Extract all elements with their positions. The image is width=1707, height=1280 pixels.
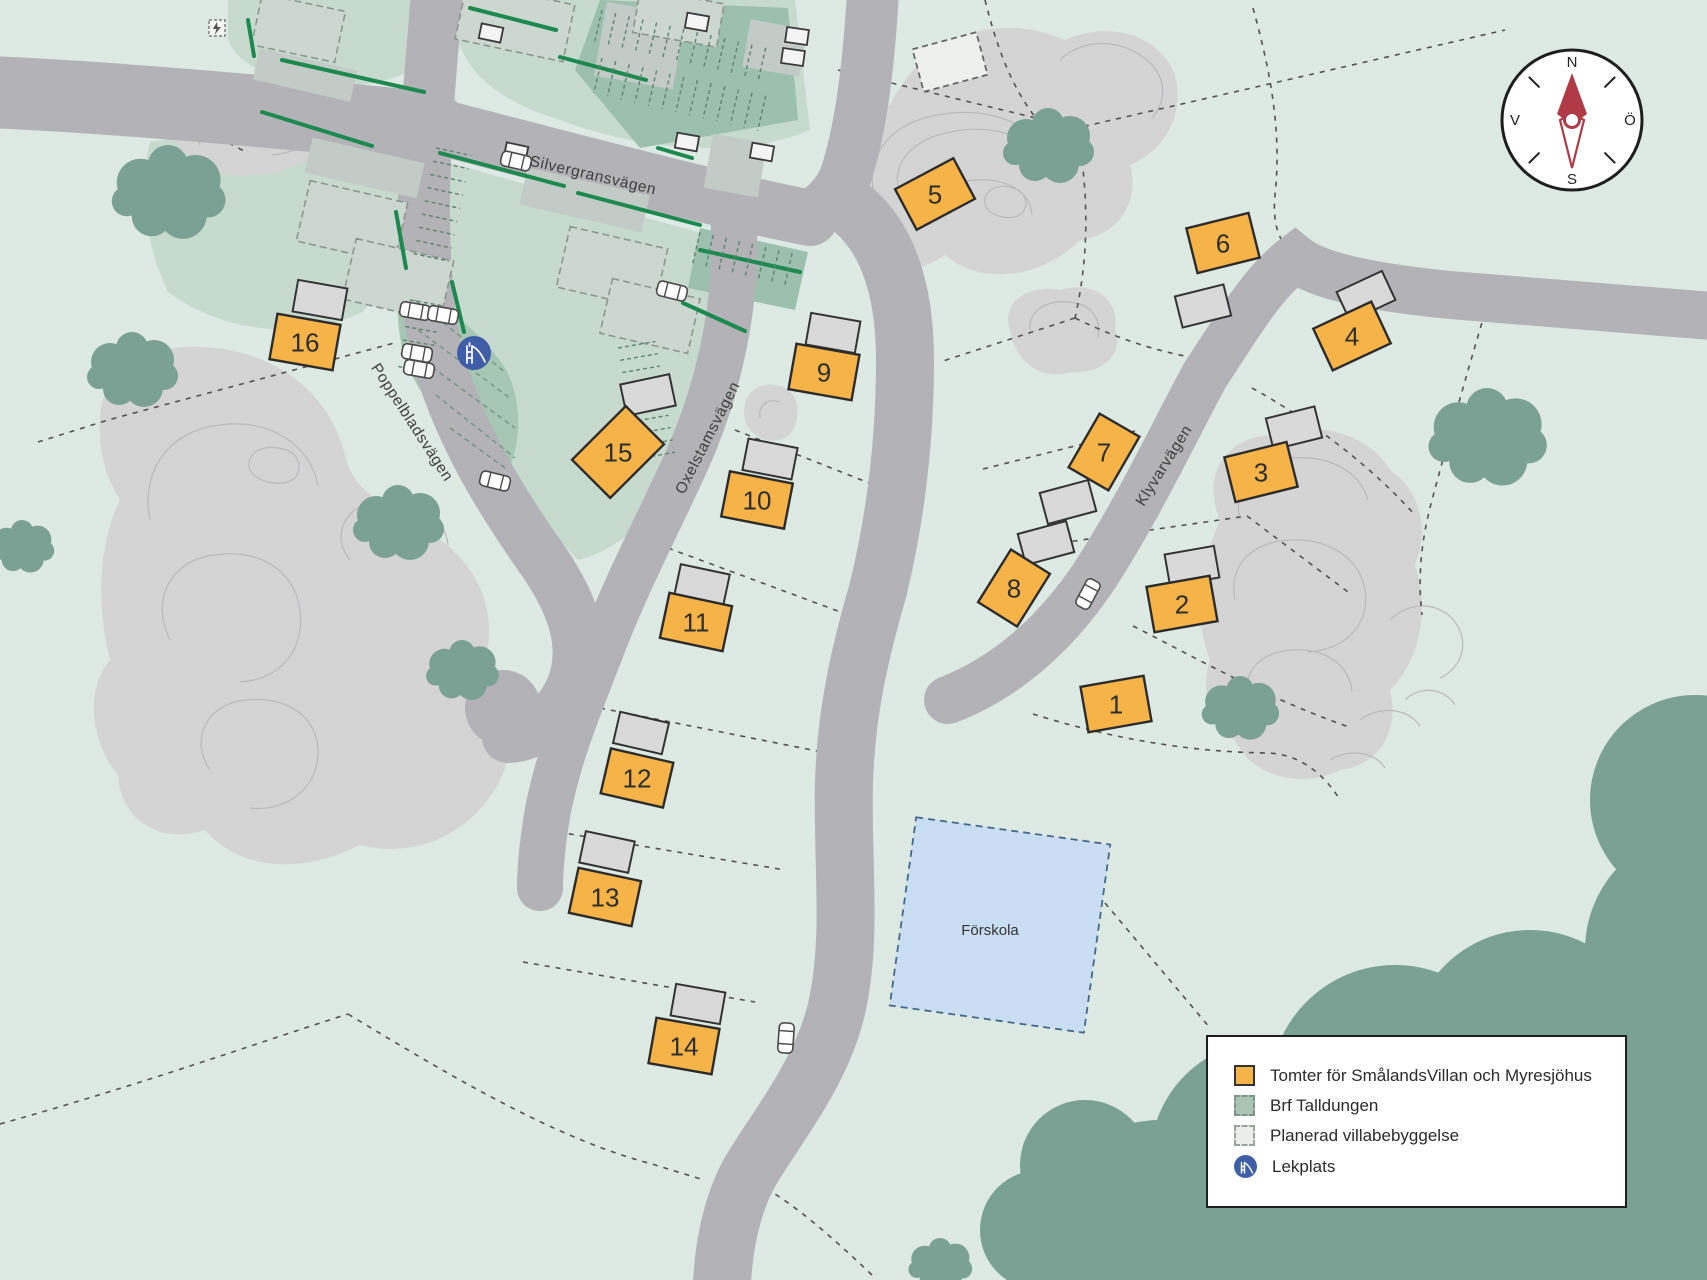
lot-number: 7 [1097, 437, 1111, 467]
lot-number: 1 [1109, 689, 1123, 719]
planned-house [742, 439, 797, 480]
compass: N S V Ö [1502, 50, 1642, 190]
brf-swatch-icon [1234, 1095, 1255, 1116]
legend-item-lekplats: Lekplats [1234, 1155, 1625, 1178]
lot-number: 15 [604, 437, 633, 467]
lot-number: 8 [1007, 573, 1021, 603]
legend-label: Planerad villabebyggelse [1270, 1126, 1459, 1146]
legend-label: Lekplats [1272, 1157, 1335, 1177]
lot-number: 4 [1345, 321, 1359, 351]
garage [785, 27, 809, 45]
garage [685, 13, 709, 32]
lot-number: 9 [817, 357, 831, 387]
site-plan-map: 12345678910111213141516 Silvergransvägen… [0, 0, 1707, 1280]
lot-number: 12 [623, 763, 652, 793]
lot-13-marker: 13 [569, 868, 641, 926]
lot-4-marker: 4 [1313, 302, 1390, 371]
planned-house [671, 984, 726, 1024]
lot-1-marker: 1 [1080, 676, 1151, 732]
lot-2-marker: 2 [1146, 576, 1217, 632]
tree-cluster [1429, 388, 1547, 486]
transformer-box [209, 20, 225, 36]
planned-house [1040, 480, 1097, 524]
car-icon [777, 1023, 794, 1054]
garage [781, 48, 805, 66]
legend: Tomter för SmålandsVillan och Myresjöhus… [1206, 1035, 1627, 1208]
lekplats-icon [457, 336, 491, 370]
lot-14-marker: 14 [648, 1018, 719, 1074]
garage [479, 23, 504, 42]
lot-number: 13 [591, 882, 620, 912]
lot-16-marker: 16 [269, 314, 340, 370]
lot-swatch-icon [1234, 1065, 1255, 1086]
lot-number: 6 [1216, 228, 1230, 258]
tree-cluster [0, 520, 54, 573]
compass-west: V [1510, 112, 1520, 129]
planned-house [613, 712, 669, 754]
lot-10-marker: 10 [721, 471, 793, 528]
forskola-label: Förskola [961, 922, 1019, 939]
legend-label: Brf Talldungen [1270, 1096, 1378, 1116]
legend-label: Tomter för SmålandsVillan och Myresjöhus [1270, 1066, 1592, 1086]
planned-swatch-icon [1234, 1125, 1255, 1146]
garage [675, 133, 699, 152]
compass-north: N [1567, 54, 1578, 71]
lot-number: 5 [928, 179, 942, 209]
tree-cluster [909, 1238, 973, 1280]
lot-6-marker: 6 [1186, 213, 1259, 273]
lot-12-marker: 12 [601, 748, 674, 807]
garage [750, 143, 774, 162]
legend-item-lots: Tomter för SmålandsVillan och Myresjöhus [1234, 1065, 1625, 1086]
forest-tree [1590, 695, 1707, 905]
lot-number: 11 [683, 607, 710, 637]
lot-number: 16 [291, 327, 320, 357]
compass-east: Ö [1624, 111, 1636, 129]
lekplats-swatch-icon [1234, 1155, 1257, 1178]
lot-number: 14 [670, 1031, 699, 1061]
compass-south: S [1567, 171, 1577, 188]
lot-number: 2 [1175, 589, 1189, 619]
lot-number: 3 [1254, 457, 1268, 487]
road-west [0, 92, 432, 128]
legend-item-brf: Brf Talldungen [1234, 1095, 1625, 1116]
lot-number: 10 [743, 485, 772, 515]
lot-9-marker: 9 [788, 344, 859, 400]
planned-house [579, 831, 635, 873]
legend-item-planned: Planerad villabebyggelse [1234, 1125, 1625, 1146]
